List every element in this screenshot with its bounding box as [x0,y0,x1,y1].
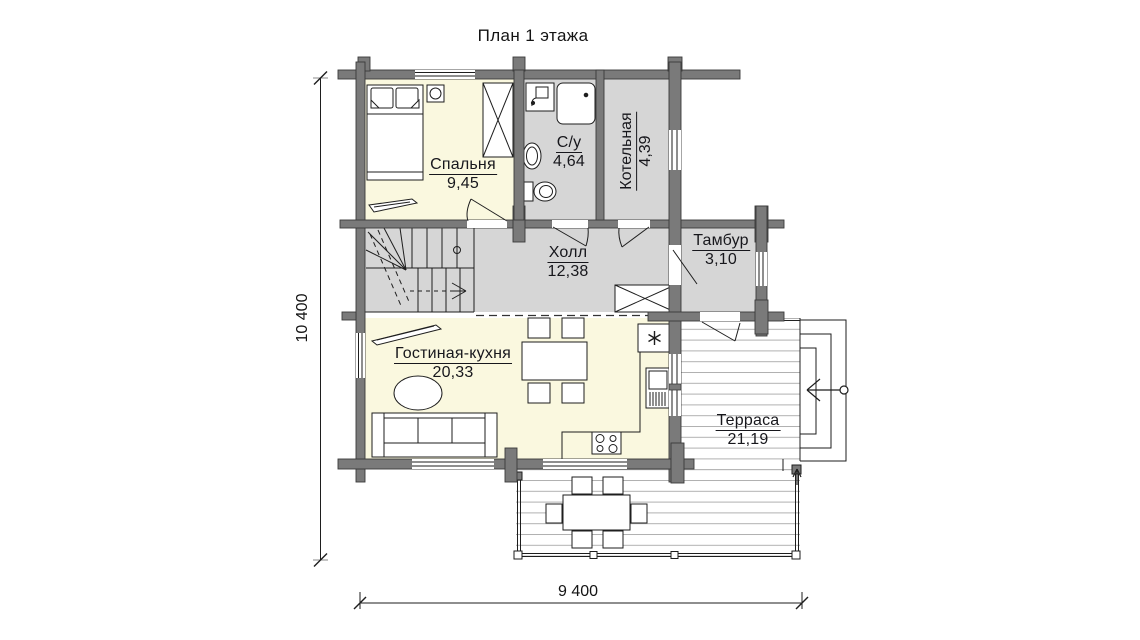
kitchen-appliance [646,368,670,408]
room-name: С/у [556,134,583,153]
room-name: Спальня [429,156,497,175]
bedroom-wardrobe [483,83,513,157]
dimension-vertical: 10 400 [294,294,312,343]
entry-arrow-icon [807,379,848,401]
label-terrace: Терраса 21,19 [716,412,781,450]
page-title: План 1 этажа [478,26,589,46]
room-area: 3,10 [692,251,750,269]
sofa [372,413,497,457]
sink-cabinet [526,83,554,111]
floor-plan-drawing [0,0,1140,640]
room-area: 4,64 [553,153,585,171]
label-bathroom: С/у 4,64 [553,134,585,172]
label-bedroom: Спальня 9,45 [429,156,497,194]
room-area: 12,38 [547,263,588,281]
room-area: 21,19 [716,431,781,449]
shower [557,83,595,124]
room-area: 20,33 [394,364,512,382]
label-hall: Холл 12,38 [547,244,588,282]
stove-icon [592,432,621,454]
room-name: Холл [548,244,589,263]
room-name: Терраса [716,412,781,431]
label-boiler: Котельная 4,39 [618,111,656,190]
nightstand [427,85,444,102]
room-area: 9,45 [429,175,497,193]
room-name: Гостиная-кухня [394,345,512,364]
bed [367,85,423,180]
floor-plan-page: План 1 этажа Спальня 9,45 С/у 4,64 Котел… [0,0,1140,640]
room-name: Котельная [618,111,637,190]
label-vestibule: Тамбур 3,10 [692,232,750,270]
room-name: Тамбур [692,232,750,251]
hall-wardrobe [615,285,675,312]
label-living-kitchen: Гостиная-кухня 20,33 [394,345,512,383]
toilet [524,182,556,201]
washbasin [523,143,541,169]
room-area: 4,39 [638,111,656,190]
dimension-horizontal: 9 400 [558,583,598,601]
fridge-icon [638,324,671,352]
